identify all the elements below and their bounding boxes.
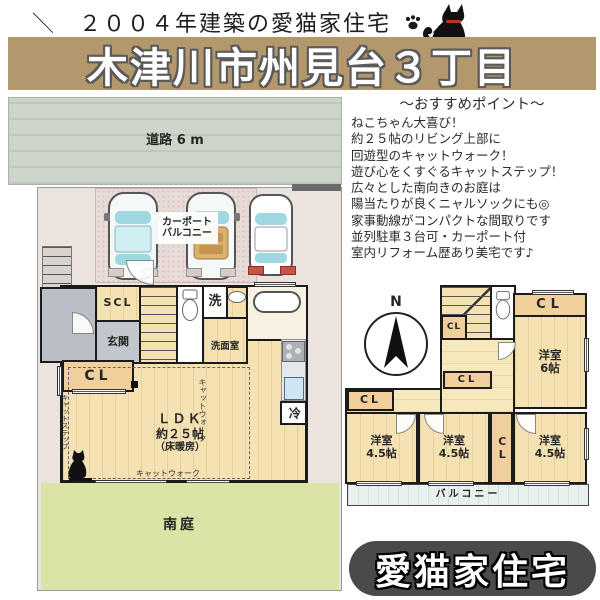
road-area: 道路 6 m <box>8 97 342 185</box>
fridge-label: 冷 <box>287 407 301 419</box>
wheel-stopper <box>220 268 236 277</box>
north-needle-icon <box>380 316 412 372</box>
cat-icon-ldk <box>63 449 93 482</box>
point-line: 室内リフォーム歴あり美宅です♪ <box>351 245 599 261</box>
window <box>584 338 589 372</box>
tagline-slash-open: ＼ <box>32 12 56 37</box>
cl-closet-hall: CL <box>443 371 492 389</box>
kitchen-sink-icon <box>284 377 304 400</box>
entrance-room: 玄関 <box>95 320 141 364</box>
toilet-icon-1f <box>180 289 200 323</box>
bathtub-icon <box>253 291 301 313</box>
point-line: 並列駐車３台可・カーポート付 <box>351 229 599 245</box>
cl-closet-left: CL <box>347 390 394 411</box>
title-banner: 木津川市州見台３丁目 <box>8 37 596 90</box>
point-line: ねこちゃん大喜び！ <box>351 115 599 131</box>
fence-strip <box>292 184 341 191</box>
point-line: 広々とした南向きのお庭は <box>351 180 599 196</box>
catwalk-label-side: キャットウォーク <box>197 378 208 466</box>
window <box>428 481 474 486</box>
window <box>72 389 126 394</box>
fridge: 冷 <box>280 401 307 425</box>
cl-closet-top: CL <box>513 293 587 317</box>
wheel-stopper <box>108 268 124 277</box>
window <box>524 481 570 486</box>
badge-label: 愛猫家住宅 <box>375 543 570 595</box>
window <box>584 428 589 460</box>
window <box>57 366 62 396</box>
washroom-label: 洗面室 <box>211 342 240 353</box>
car-3-icon <box>245 193 297 277</box>
road-label: 道路 6 m <box>146 134 204 149</box>
toilet-icon-2f <box>494 290 512 322</box>
washroom-sink-icon <box>228 291 246 303</box>
scl-room: SCL <box>95 285 141 322</box>
badge: 愛猫家住宅 <box>349 541 596 596</box>
points-heading: 〜おすすめポイント〜 <box>348 96 596 114</box>
point-line: 家事動線がコンパクトな間取りです <box>351 213 599 229</box>
room6: 洋室 6帖 <box>513 315 587 409</box>
point-line: 約２５帖のリビング上部に <box>351 131 599 147</box>
window <box>356 481 402 486</box>
washroom: 洗面室 <box>202 317 248 364</box>
wheel-stopper <box>186 268 202 277</box>
window <box>532 290 574 295</box>
wheel-stopper <box>248 266 264 275</box>
point-line: 回遊型のキャットウォーク！ <box>351 148 599 164</box>
north-label: N <box>384 294 408 310</box>
page-title: 木津川市州見台３丁目 <box>87 34 517 94</box>
pillar-marker <box>131 381 138 388</box>
carport-label: カーポート バルコニー <box>156 212 218 244</box>
points-list: ねこちゃん大喜び！ 約２５帖のリビング上部に 回遊型のキャットウォーク！ 遊び心… <box>351 115 599 265</box>
wheel-stopper <box>280 266 296 275</box>
balcony-2f: バルコニー <box>347 484 589 506</box>
washer-label: 洗 <box>208 295 221 310</box>
scl-label: SCL <box>103 297 132 310</box>
cl-closet-mid: CL <box>490 412 513 484</box>
tagline: ＼ ２００４年建築の愛猫家住宅 ／ <box>32 6 452 36</box>
catwalk-label-bottom: キャットウォーク <box>136 468 200 479</box>
stove-icon <box>282 341 305 362</box>
point-line: 遊び心をくすぐるキャットステップ！ <box>351 164 599 180</box>
garden-area <box>41 483 339 590</box>
washer-room: 洗 <box>202 285 228 319</box>
cl-closet-stair: CL <box>441 315 467 340</box>
ldk-label: ＬＤＫ 約２５帖 （床暖房） <box>134 406 226 460</box>
stairs-1f <box>139 285 178 364</box>
point-line: 陽当たりが良くニャルソックにも◎ <box>351 196 599 212</box>
entrance-label: 玄関 <box>107 336 129 349</box>
garden-label: 南庭 <box>140 515 220 535</box>
window <box>254 282 296 287</box>
